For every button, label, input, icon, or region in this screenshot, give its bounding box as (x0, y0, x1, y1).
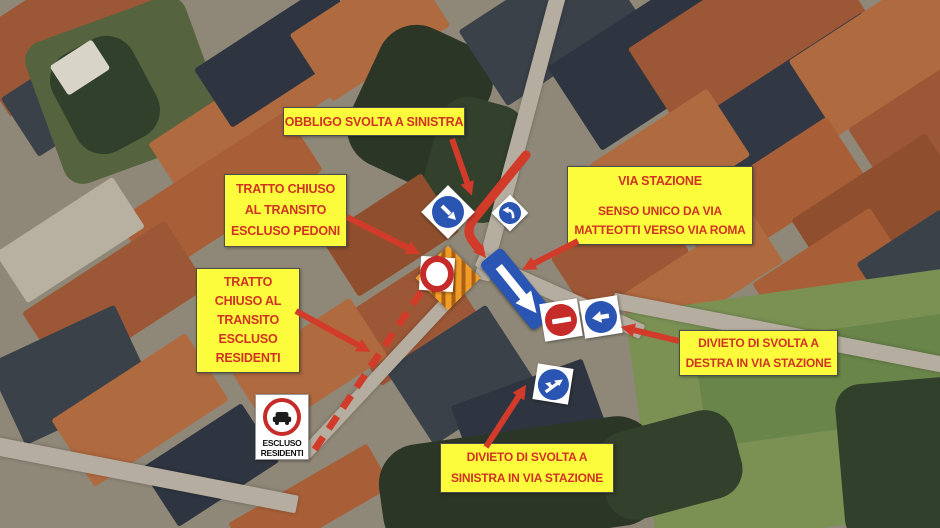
curved-left-arrow-icon (499, 202, 521, 224)
label-divieto-svolta-destra: DIVIETO DI SVOLTA A DESTRA IN VIA STAZIO… (679, 330, 838, 376)
label-line: SENSO UNICO DA VIA (598, 202, 722, 221)
label-line: AL TRANSITO (245, 200, 326, 221)
residents-sign-line: ESCLUSO (261, 438, 304, 448)
label-via-stazione-senso-unico: VIA STAZIONE SENSO UNICO DA VIA MATTEOTT… (567, 166, 753, 245)
label-line: MATTEOTTI VERSO VIA ROMA (574, 221, 745, 240)
label-line: TRANSITO (217, 311, 279, 330)
label-title: VIA STAZIONE (618, 172, 702, 191)
car-icon (263, 398, 301, 436)
label-line: DIVIETO DI SVOLTA A (698, 333, 819, 353)
label-divieto-svolta-sinistra: DIVIETO DI SVOLTA A SINISTRA IN VIA STAZ… (440, 443, 614, 493)
permitted-directions-sign (532, 363, 573, 404)
label-obbligo-svolta-sinistra: OBBLIGO SVOLTA A SINISTRA (283, 107, 465, 136)
no-entry-sign (539, 298, 582, 341)
label-line: TRATTO (224, 273, 272, 292)
label-tratto-chiuso-residenti: TRATTO CHIUSO AL TRANSITO ESCLUSO RESIDE… (196, 268, 300, 373)
label-line: DIVIETO DI SVOLTA A (467, 447, 588, 468)
label-line: ESCLUSO (218, 330, 277, 349)
residents-exempt-sign: ESCLUSO RESIDENTI (255, 394, 309, 460)
left-arrow-icon (583, 299, 620, 336)
label-line: RESIDENTI (216, 349, 281, 368)
road-closed-sign (419, 256, 455, 292)
label-line: CHIUSO AL (215, 292, 282, 311)
label-line: ESCLUSO PEDONI (231, 221, 340, 242)
trees (833, 374, 940, 528)
residents-sign-line: RESIDENTI (261, 448, 304, 458)
label-line: DESTRA IN VIA STAZIONE (686, 353, 832, 373)
traffic-plan-map: ESCLUSO RESIDENTI OBBLIGO SVOLTA A SINIS… (0, 0, 940, 528)
label-text: OBBLIGO SVOLTA A SINISTRA (285, 115, 464, 129)
branched-arrow-icon (535, 366, 570, 401)
arrow-down-right-icon (432, 196, 464, 228)
no-entry-bar-icon (543, 302, 580, 339)
label-line: SINISTRA IN VIA STAZIONE (451, 468, 603, 489)
red-ring-icon (419, 255, 455, 293)
label-line: TRATTO CHIUSO (236, 179, 335, 200)
label-tratto-chiuso-pedoni: TRATTO CHIUSO AL TRANSITO ESCLUSO PEDONI (224, 174, 347, 247)
turn-left-sign (579, 295, 622, 338)
